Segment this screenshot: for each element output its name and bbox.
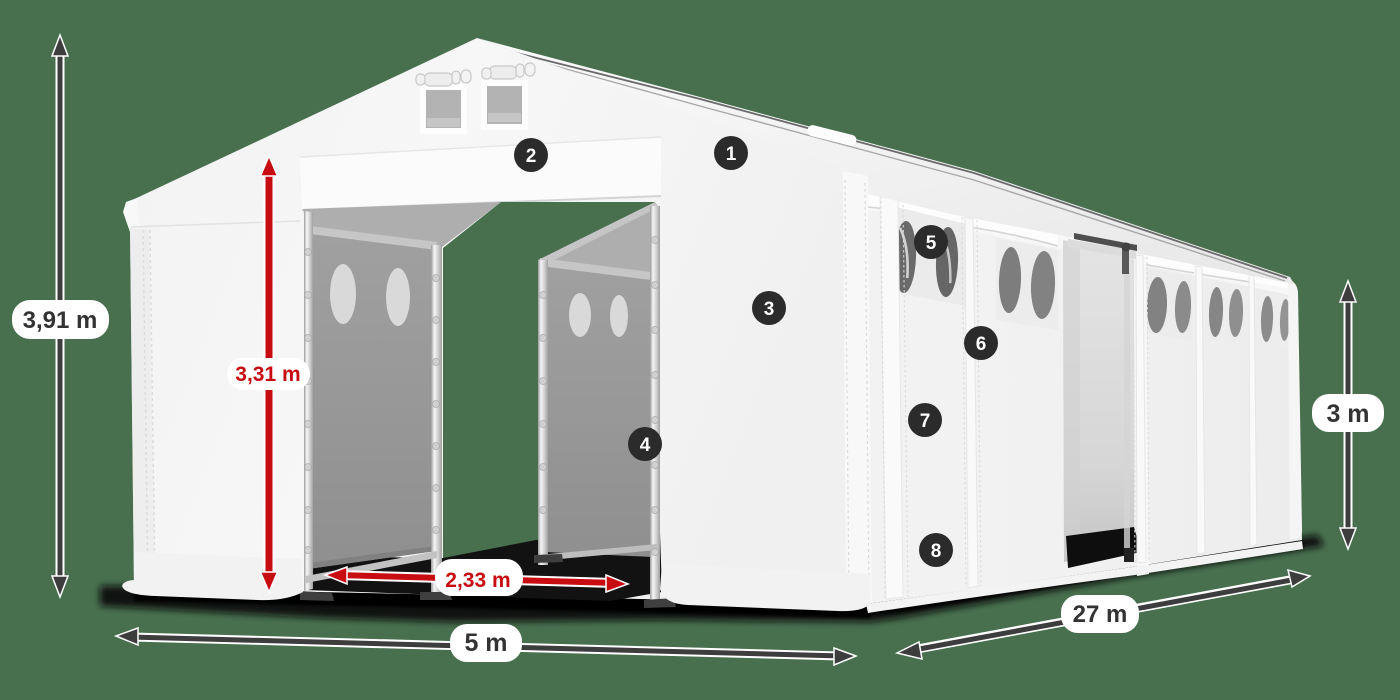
svg-text:2: 2: [526, 146, 537, 167]
svg-text:3 m: 3 m: [1326, 400, 1369, 428]
svg-text:5 m: 5 m: [464, 629, 507, 657]
svg-text:3: 3: [764, 299, 775, 320]
svg-text:4: 4: [640, 435, 651, 456]
svg-text:8: 8: [931, 541, 942, 562]
svg-text:6: 6: [976, 334, 987, 355]
svg-text:3,91 m: 3,91 m: [23, 307, 98, 334]
svg-text:2,33 m: 2,33 m: [445, 569, 510, 592]
svg-text:7: 7: [920, 411, 931, 432]
svg-text:3,31 m: 3,31 m: [235, 363, 300, 386]
svg-text:5: 5: [926, 233, 937, 254]
svg-text:1: 1: [726, 144, 737, 165]
svg-text:27 m: 27 m: [1073, 601, 1128, 628]
